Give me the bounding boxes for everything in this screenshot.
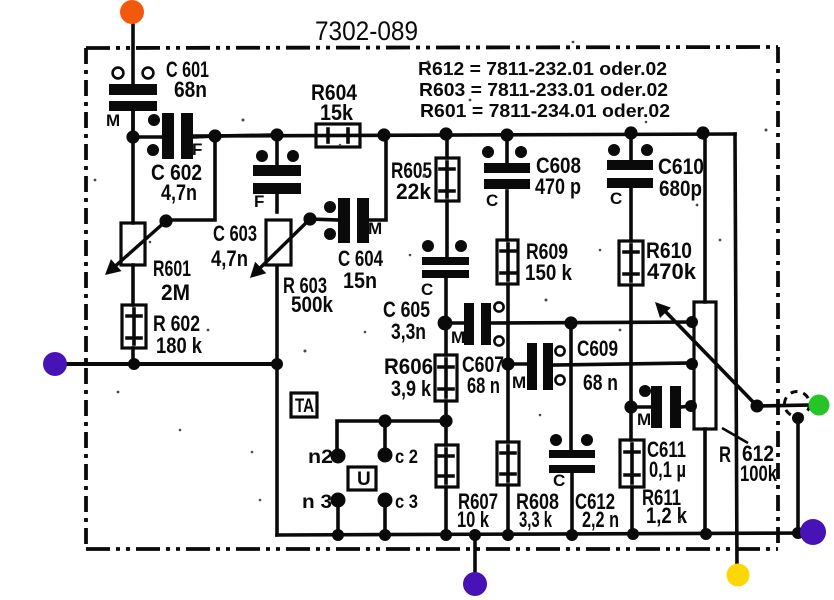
svg-text:2M: 2M bbox=[161, 280, 190, 305]
svg-text:C 603: C 603 bbox=[213, 221, 257, 246]
svg-text:TA: TA bbox=[295, 396, 314, 417]
svg-text:R: R bbox=[719, 442, 731, 467]
svg-text:4,7n: 4,7n bbox=[211, 246, 248, 271]
svg-text:4,7n: 4,7n bbox=[161, 180, 197, 205]
svg-text:10 k: 10 k bbox=[457, 507, 489, 532]
svg-text:R603 = 7811-233.01 oder.02: R603 = 7811-233.01 oder.02 bbox=[419, 80, 668, 100]
svg-text:n 3: n 3 bbox=[302, 491, 332, 513]
svg-text:C: C bbox=[553, 471, 565, 490]
svg-text:R601: R601 bbox=[153, 256, 191, 281]
svg-text:0,1 µ: 0,1 µ bbox=[649, 457, 686, 482]
svg-text:R601 = 7811-234.01 oder.02: R601 = 7811-234.01 oder.02 bbox=[420, 101, 670, 121]
svg-text:68 n: 68 n bbox=[467, 373, 500, 398]
svg-text:68 n: 68 n bbox=[583, 370, 618, 395]
svg-text:15n: 15n bbox=[343, 268, 377, 293]
svg-text:C: C bbox=[486, 191, 498, 210]
svg-text:n2: n2 bbox=[308, 446, 333, 468]
svg-text:C609: C609 bbox=[577, 336, 618, 361]
svg-text:1,2 k: 1,2 k bbox=[646, 503, 687, 528]
svg-text:C: C bbox=[610, 189, 622, 208]
svg-text:150 k: 150 k bbox=[525, 260, 572, 285]
svg-text:F: F bbox=[254, 192, 264, 211]
svg-text:M: M bbox=[637, 410, 651, 429]
svg-text:3,3n: 3,3n bbox=[391, 319, 426, 344]
svg-text:U: U bbox=[357, 469, 371, 490]
svg-text:680p: 680p bbox=[659, 176, 702, 201]
svg-text:c 3: c 3 bbox=[395, 491, 418, 513]
svg-text:7302-089: 7302-089 bbox=[315, 16, 418, 46]
svg-text:470k: 470k bbox=[647, 259, 696, 284]
svg-text:2,2 n: 2,2 n bbox=[582, 507, 619, 532]
svg-text:M: M bbox=[106, 111, 120, 130]
svg-text:3,9 k: 3,9 k bbox=[391, 376, 431, 401]
svg-text:68n: 68n bbox=[174, 77, 207, 102]
svg-text:100k: 100k bbox=[740, 461, 777, 486]
svg-text:C: C bbox=[421, 280, 433, 299]
svg-text:c 2: c 2 bbox=[395, 446, 418, 468]
svg-text:470 p: 470 p bbox=[535, 174, 581, 199]
svg-text:15k: 15k bbox=[320, 100, 353, 125]
svg-text:M: M bbox=[451, 328, 465, 347]
svg-text:R612 = 7811-232.01 oder.02: R612 = 7811-232.01 oder.02 bbox=[418, 59, 667, 79]
svg-text:22k: 22k bbox=[396, 179, 431, 204]
svg-text:500k: 500k bbox=[291, 292, 333, 317]
svg-text:M: M bbox=[512, 373, 526, 392]
svg-text:F: F bbox=[192, 140, 202, 159]
svg-text:3,3 k: 3,3 k bbox=[519, 507, 552, 532]
svg-text:180 k: 180 k bbox=[156, 333, 202, 358]
svg-text:M: M bbox=[368, 219, 382, 238]
